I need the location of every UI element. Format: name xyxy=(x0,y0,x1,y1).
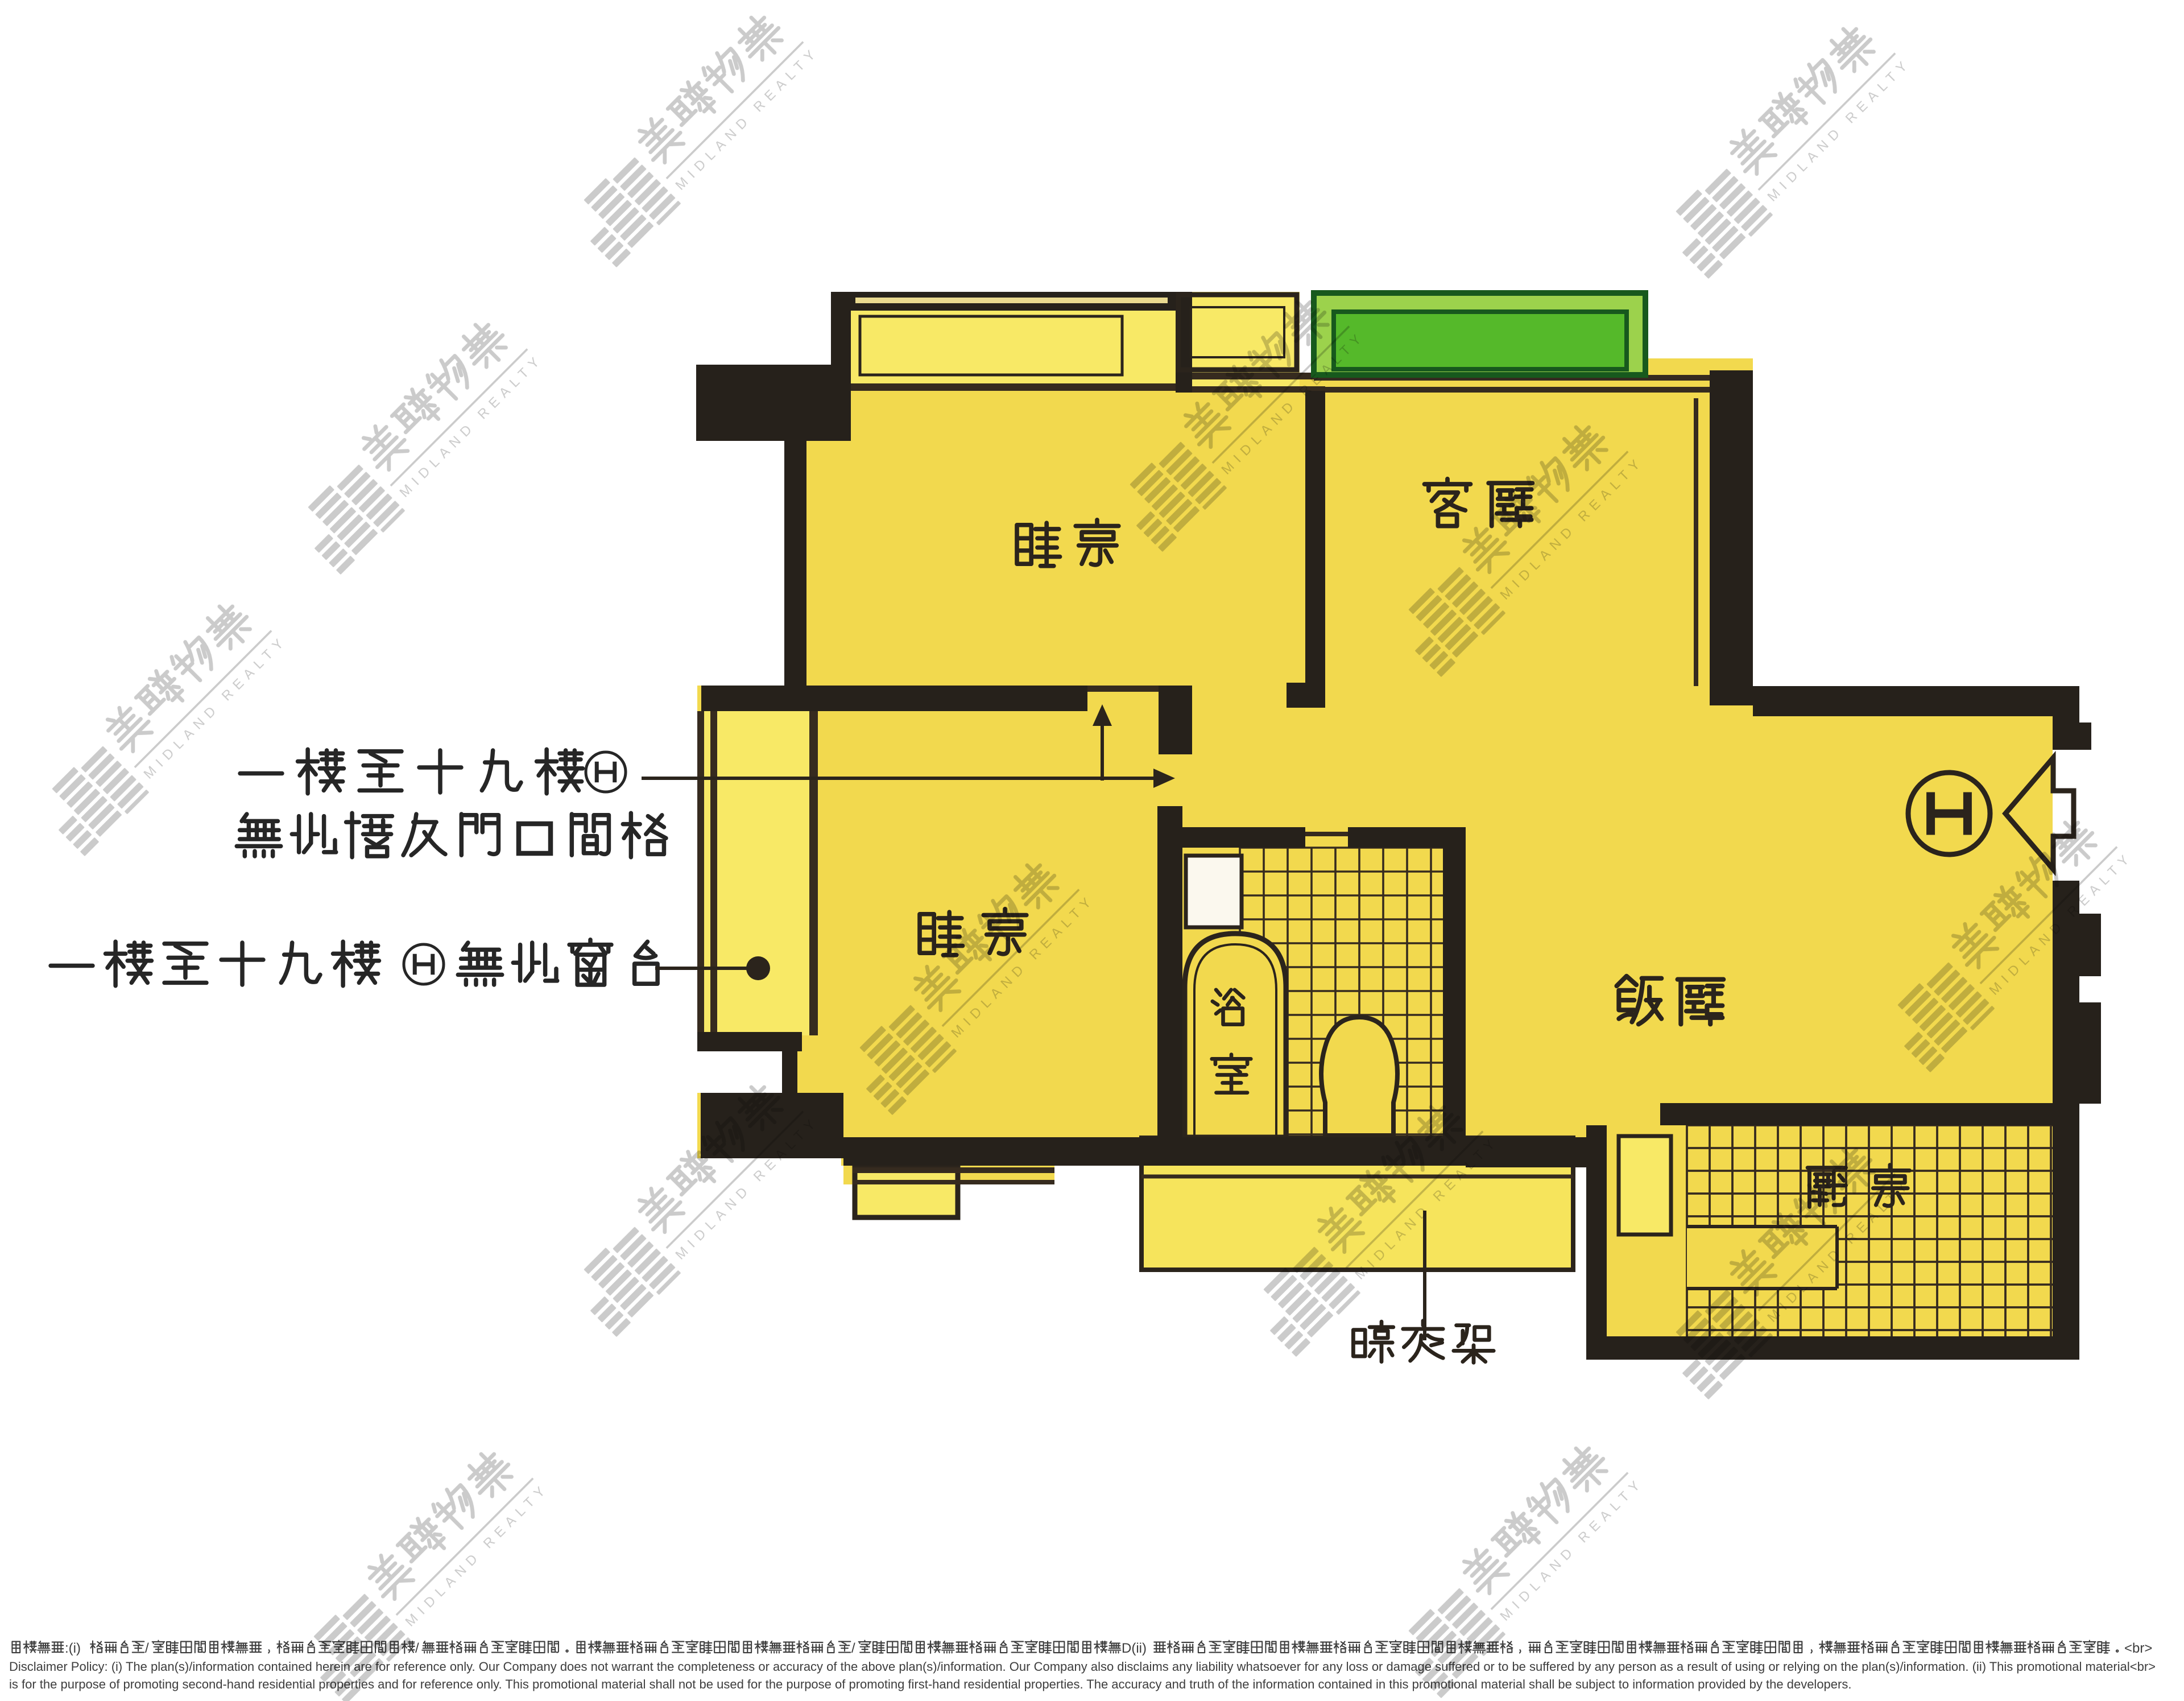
svg-text:/: / xyxy=(415,1641,419,1656)
svg-text:/: / xyxy=(851,1641,855,1656)
svg-text:<br>: <br> xyxy=(2124,1641,2152,1656)
svg-text:is for the purpose of promotin: is for the purpose of promoting second-h… xyxy=(9,1677,1851,1691)
svg-text:/: / xyxy=(145,1641,149,1656)
svg-text:D(ii): D(ii) xyxy=(1122,1641,1147,1656)
svg-text::(i): :(i) xyxy=(65,1641,81,1656)
